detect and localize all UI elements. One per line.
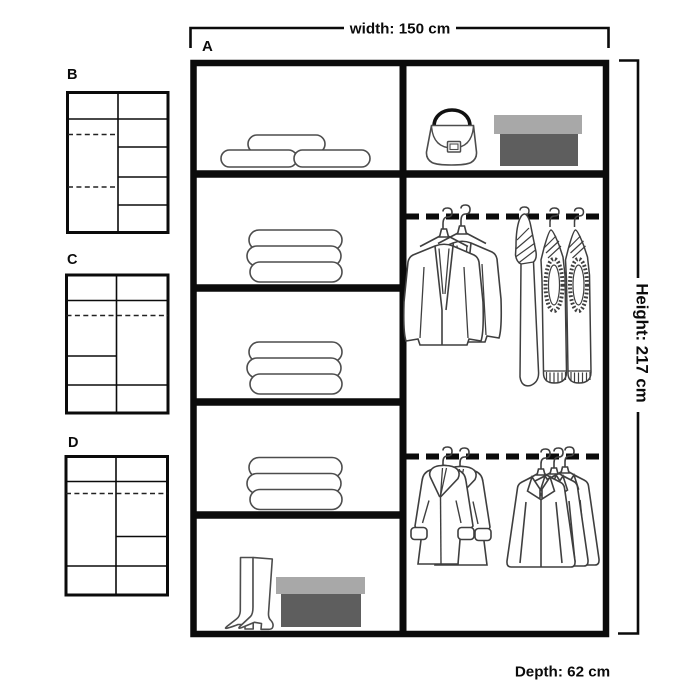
svg-text:D: D (68, 435, 78, 451)
svg-text:A: A (202, 38, 213, 55)
svg-text:C: C (67, 252, 78, 268)
svg-text:width: 150 cm: width: 150 cm (349, 21, 450, 38)
svg-text:Depth: 62 cm: Depth: 62 cm (515, 664, 610, 681)
svg-text:B: B (67, 67, 77, 83)
svg-text:Height: 217 cm: Height: 217 cm (633, 283, 652, 402)
